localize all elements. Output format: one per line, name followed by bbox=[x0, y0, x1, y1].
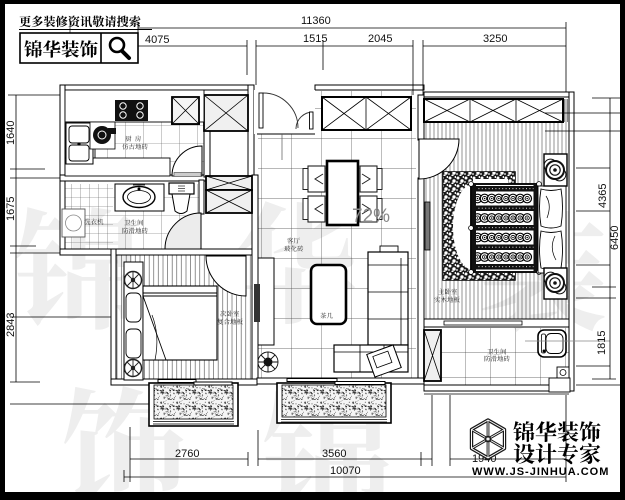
svg-text:1640: 1640 bbox=[5, 121, 17, 145]
svg-text:4365: 4365 bbox=[597, 184, 609, 208]
svg-text:6450: 6450 bbox=[609, 226, 621, 250]
svg-text:2045: 2045 bbox=[368, 33, 392, 45]
svg-text:11360: 11360 bbox=[301, 15, 331, 27]
svg-text:1815: 1815 bbox=[596, 331, 608, 355]
svg-text:1675: 1675 bbox=[5, 197, 17, 221]
svg-text:10070: 10070 bbox=[330, 465, 361, 477]
svg-text:3560: 3560 bbox=[322, 448, 346, 460]
svg-text:2843: 2843 bbox=[5, 313, 17, 337]
svg-text:1515: 1515 bbox=[303, 33, 327, 45]
svg-text:WWW.JS-JINHUA.COM: WWW.JS-JINHUA.COM bbox=[472, 466, 609, 478]
svg-text:3250: 3250 bbox=[483, 33, 507, 45]
svg-text:72%: 72% bbox=[352, 206, 390, 227]
svg-text:4075: 4075 bbox=[145, 34, 169, 46]
svg-text:2760: 2760 bbox=[175, 448, 199, 460]
